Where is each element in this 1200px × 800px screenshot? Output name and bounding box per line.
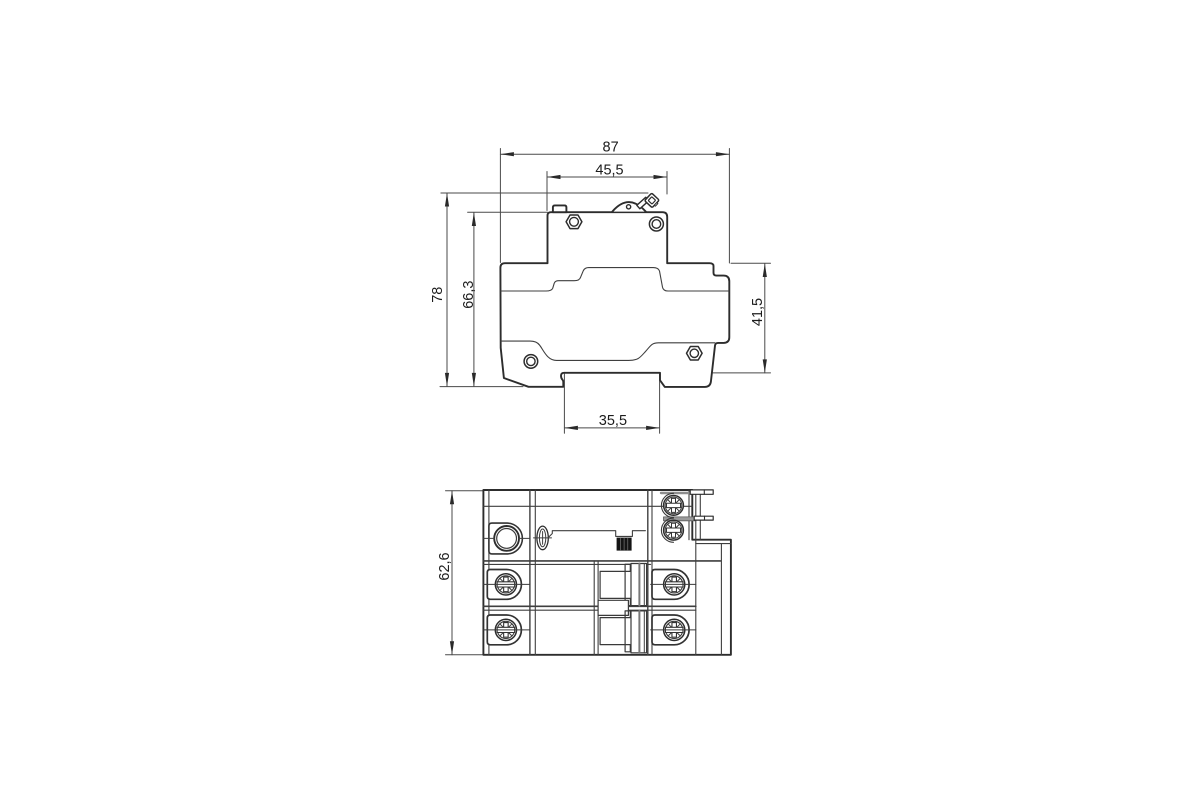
svg-text:62,6: 62,6 [437, 552, 453, 580]
svg-text:41,5: 41,5 [750, 298, 766, 326]
svg-text:35,5: 35,5 [599, 413, 627, 429]
svg-text:45,5: 45,5 [595, 163, 623, 179]
svg-text:87: 87 [603, 140, 619, 156]
svg-text:66,3: 66,3 [461, 281, 477, 309]
svg-text:78: 78 [430, 287, 446, 303]
